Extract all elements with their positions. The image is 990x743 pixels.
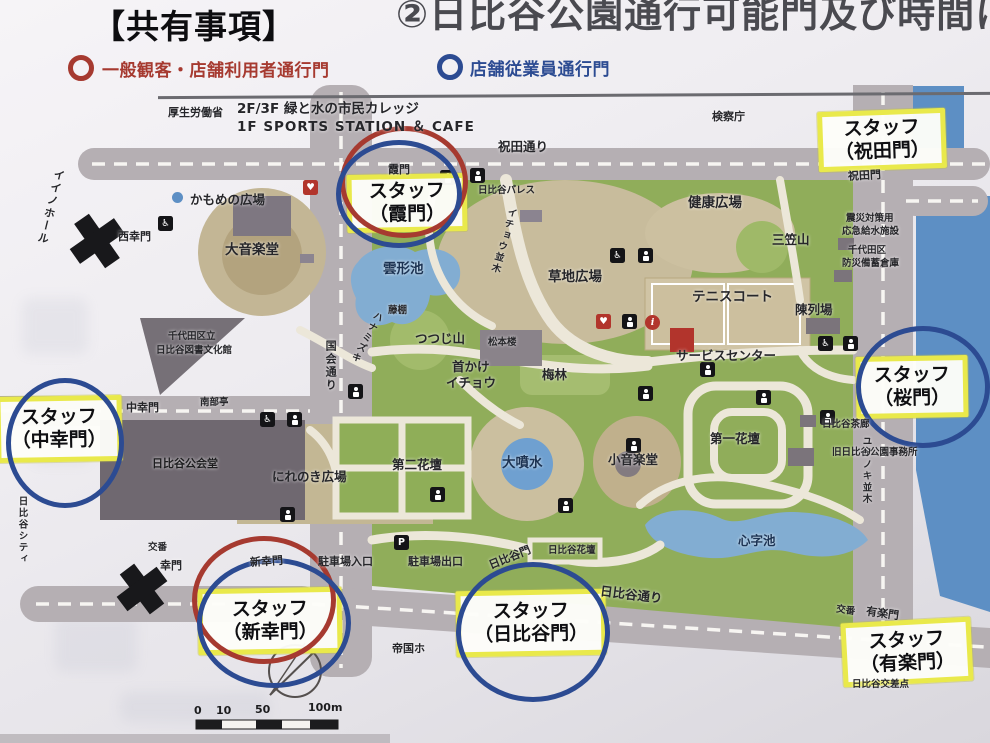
staff-label-line: （有楽門） — [847, 649, 968, 678]
blue-ring-hibiyamon — [456, 562, 610, 702]
staff-label-yurakumon: スタッフ （有楽門） — [840, 617, 973, 688]
map-label: 草地広場 — [548, 270, 602, 285]
page-title-bracket: 【共有事項】 — [92, 0, 296, 48]
toilet-icon — [756, 390, 771, 405]
blue-ring-shinsachimon — [197, 558, 351, 688]
map-label: 心字池 — [738, 534, 776, 548]
toilet-icon — [430, 487, 445, 502]
staff-label-line: （祝田門） — [823, 138, 942, 165]
toilet-icon — [638, 386, 653, 401]
toilet-icon — [470, 168, 485, 183]
map-label: 幸門 — [160, 560, 182, 572]
map-label: 雲形池 — [383, 262, 424, 277]
pond-dot-icon — [172, 192, 183, 203]
map-label: 千代田区 — [848, 246, 886, 256]
map-label: イチョウ — [446, 376, 496, 390]
scale-tick: 50 — [255, 703, 270, 716]
map-label: 駐車場出口 — [408, 556, 463, 568]
map-label: 祝田門 — [848, 169, 882, 183]
toilet-icon — [280, 507, 295, 522]
legend-label-staff: 店舗従業員通行門 — [470, 55, 610, 80]
map-label: 日比谷パレス — [478, 186, 535, 196]
toilet-icon — [348, 384, 363, 399]
map-label: 大音楽堂 — [225, 243, 279, 258]
map-label: 日比谷花壇 — [548, 546, 596, 556]
map-label: 国会通り — [324, 340, 336, 392]
map-label: 1F SPORTS STATION ＆ CAFE — [237, 120, 475, 135]
map-label: 駐車場入口 — [318, 556, 373, 568]
accessible-icon: ♿ — [260, 412, 275, 427]
blue-ring-kasumimon — [336, 140, 462, 248]
nursing-icon — [287, 412, 302, 427]
map-label: つつじ山 — [415, 332, 465, 346]
map-label: 応急給水施設 — [842, 227, 899, 237]
map-label: サービスセンター — [676, 349, 776, 363]
scale-tick: 10 — [216, 704, 231, 717]
staff-label-iwaidamon: スタッフ （祝田門） — [817, 108, 947, 172]
map-label: 震災対策用 — [846, 214, 894, 224]
map-label: 西幸門 — [118, 231, 151, 243]
legend-red-ring-icon — [68, 55, 94, 81]
map-label: 霞門 — [388, 164, 410, 176]
nursing-icon — [843, 336, 858, 351]
map-label: 帝国ホ — [392, 643, 425, 655]
map-label: 日比谷茶廊 — [822, 420, 870, 430]
map-label: 南部亭 — [200, 398, 229, 408]
map-label: ユリノキ並木 — [860, 436, 870, 505]
accessible-icon: ♿ — [158, 216, 173, 231]
map-label: 健康広場 — [688, 196, 742, 211]
scale-bar — [196, 720, 338, 729]
toilet-icon — [700, 362, 715, 377]
scale-tick: 0 — [194, 704, 202, 717]
map-label: 梅林 — [542, 368, 567, 382]
map-label: 首かけ — [452, 360, 490, 374]
map-label: テニスコート — [692, 290, 773, 305]
parking-icon: P — [394, 535, 409, 550]
scale-tick: 100m — [308, 701, 342, 714]
legend-label-general: 一般観客・店舗利用者通行門 — [102, 56, 330, 81]
info-icon: i — [645, 315, 660, 330]
photographed-handout-page: 【共有事項】 ②日比谷公園通行可能門及び時間につ 一般観客・店舗利用者通行門 店… — [0, 0, 990, 743]
aed-icon: ♥ — [303, 180, 318, 195]
nursing-icon — [622, 314, 637, 329]
map-label: 日比谷交差点 — [852, 680, 909, 690]
map-label: 日比谷公会堂 — [152, 458, 218, 470]
page-edge — [0, 734, 390, 743]
legend-blue-ring-icon — [437, 54, 463, 80]
map-label: 松本楼 — [488, 338, 517, 348]
map-label: 小音楽堂 — [608, 453, 658, 467]
map-label: 第一花壇 — [710, 432, 760, 446]
blue-ring-nakasachimon — [6, 378, 124, 508]
toilet-icon — [558, 498, 573, 513]
map-label: 防災備蓄倉庫 — [842, 259, 899, 269]
map-label: 日比谷図書文化館 — [156, 346, 232, 356]
map-label: 日比谷シティ — [16, 496, 26, 565]
page-title: ②日比谷公園通行可能門及び時間につ — [396, 0, 990, 38]
map-label: 中幸門 — [126, 402, 159, 414]
map-label: 厚生労働省 — [168, 107, 223, 119]
map-label: 三笠山 — [772, 233, 810, 247]
map-label: にれのき広場 — [272, 470, 347, 484]
nursing-icon — [638, 248, 653, 263]
map-label: かもめの広場 — [190, 193, 265, 207]
map-label: 検察庁 — [712, 111, 745, 123]
map-label: 大噴水 — [502, 456, 543, 471]
map-label: 交番 — [148, 543, 167, 553]
toilet-icon — [626, 438, 641, 453]
map-label: 祝田通り — [498, 140, 548, 154]
aed-icon: ♥ — [596, 314, 611, 329]
map-label: 2F/3F 緑と水の市民カレッジ — [237, 102, 419, 117]
map-label: 新幸門 — [250, 555, 284, 569]
accessible-icon: ♿ — [610, 248, 625, 263]
map-label: 千代田区立 — [168, 332, 216, 342]
blue-ring-sakuramon — [856, 326, 990, 448]
map-label: 陳列場 — [795, 303, 833, 317]
map-label: 第二花壇 — [392, 458, 442, 472]
map-label: 旧日比谷公園事務所 — [832, 448, 918, 458]
map-label: 藤棚 — [388, 306, 407, 316]
accessible-icon: ♿ — [818, 336, 833, 351]
